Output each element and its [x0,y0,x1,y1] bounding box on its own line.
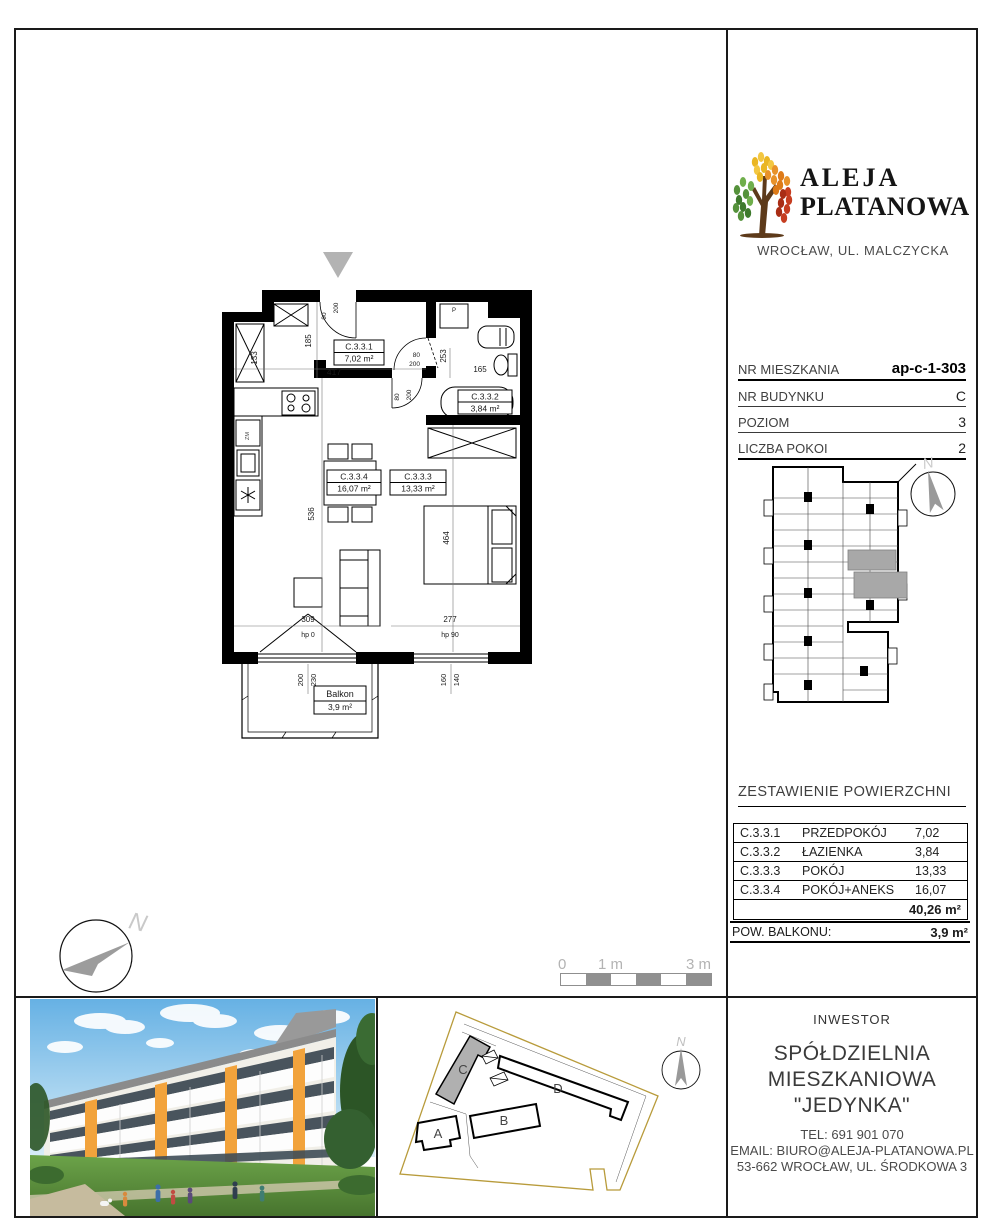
scale-label-1m: 1 m [598,956,623,973]
building-level-minimap: N [748,452,978,752]
room-name: POKÓJ [802,864,915,878]
living-code: C.3.3.4 [340,472,368,482]
door-bed-h: 200 [406,389,413,400]
area-row: C.3.3.3 POKÓJ 13,33 [734,862,967,881]
hall-code: C.3.3.1 [345,342,373,352]
win-left-a: 200 [296,674,305,687]
door-bath-h: 200 [409,361,420,368]
balcony-name: Balkon [326,689,354,699]
scale-bar [560,973,712,986]
door-entrance-h: 200 [333,302,340,313]
north-arrow-icon [62,942,130,976]
dishwasher-label: ZM [245,432,251,440]
brand-name-line1: ALEJA [800,163,900,192]
site-label-d: D [553,1081,562,1096]
win-left-b: 230 [309,674,318,687]
investor-name-line1: SPÓŁDZIELNIA [728,1041,976,1067]
dim-bath-depth: 253 [439,349,448,363]
minimap-north-arrow-icon [921,469,943,513]
washer-label: P [452,308,456,314]
door-bed-w: 80 [394,393,401,401]
highlighted-apartment-balcony [854,572,907,598]
info-label: NR MIESZKANIA [738,362,839,377]
room-code: C.3.3.2 [734,845,802,859]
area-summary-title: ZESTAWIENIE POWIERZCHNI [738,784,966,807]
brochure-page: C.3.3.1 7,02 m² C.3.3.2 3,84 m² C.3.3.4 … [0,0,992,1222]
dim-bath-width: 165 [473,365,487,374]
bath-code: C.3.3.2 [471,392,499,402]
room-name: POKÓJ+ANEKS [802,883,915,897]
investor-address: 53-662 WROCŁAW, UL. ŚRODKOWA 3 [728,1159,976,1175]
room-name: PRZEDPOKÓJ [802,826,915,840]
investor-phone: TEL: 691 901 070 [728,1127,976,1143]
side-table [294,578,322,607]
room-code: C.3.3.1 [734,826,802,840]
info-value: 3 [958,414,966,430]
room-area: 16,07 [915,883,967,897]
win-right-a: 160 [439,674,448,687]
kitchen-counter [234,388,318,516]
site-label-a: A [434,1126,443,1141]
balcony-label: POW. BALKONU: [732,925,831,939]
site-north-label: N [676,1034,686,1049]
room-area: 3,84 [915,845,967,859]
dim-bed-depth: 464 [442,531,451,545]
dim-hall-offset: 185 [304,334,313,348]
investor-block: INWESTOR SPÓŁDZIELNIA MIESZKANIOWA "JEDY… [728,1012,976,1175]
win-right-b: 140 [452,674,461,687]
info-row-building: NR BUDYNKU C [738,381,966,407]
sill-right: hp 90 [441,632,459,639]
investor-name-line2: MIESZKANIOWA "JEDYNKA" [728,1067,976,1119]
scale-label-0: 0 [558,956,566,973]
site-plan: C A B D N [378,998,724,1218]
area-summary-table: C.3.3.1 PRZEDPOKÓJ 7,02 C.3.3.2 ŁAZIENKA… [733,823,968,920]
north-compass-main: N [52,906,152,998]
bed [424,506,516,584]
scale-label-3m: 3 m [686,956,711,973]
hall-area: 7,02 m² [345,354,374,364]
bedroom-furniture [424,428,516,584]
minimap-north-label: N [921,454,935,473]
bed-area: 13,33 m² [401,484,435,494]
balcony-area: 3,9 m² [328,702,352,712]
area-row: C.3.3.4 POKÓJ+ANEKS 16,07 [734,881,967,900]
room-code: C.3.3.3 [734,864,802,878]
info-label: POZIOM [738,415,789,430]
info-value: ap-c-1-303 [892,360,966,377]
sill-left: hp 0 [301,632,315,639]
room-code: C.3.3.4 [734,883,802,897]
highlighted-apartment [848,550,896,570]
door-entrance-w: 90 [321,312,328,320]
brand-location: WROCŁAW, UL. MALCZYCKA [728,243,978,258]
site-label-c: C [458,1062,467,1077]
bed-code: C.3.3.3 [404,472,432,482]
room-area: 13,33 [915,864,967,878]
balcony-area-row: POW. BALKONU: 3,9 m² [730,921,970,943]
dim-bed-width: 277 [443,615,457,624]
info-row-apartment-number: NR MIESZKANIA ap-c-1-303 [738,354,966,381]
site-north-arrow-icon [675,1048,687,1086]
dim-hall-width: 417 [327,367,341,377]
site-label-b: B [500,1113,509,1128]
dim-shaft: 133 [250,351,259,365]
apartment-floor-plan: C.3.3.1 7,02 m² C.3.3.2 3,84 m² C.3.3.4 … [222,248,542,748]
washbasin [478,326,514,348]
total-area: 40,26 m² [734,900,967,919]
apartment-info-table: NR MIESZKANIA ap-c-1-303 NR BUDYNKU C PO… [738,354,966,460]
stove [282,391,315,415]
building-photo [30,999,375,1216]
area-row: C.3.3.1 PRZEDPOKÓJ 7,02 [734,824,967,843]
door-bath-w: 80 [413,352,421,359]
dim-living-depth: 536 [307,507,316,521]
info-label: NR BUDYNKU [738,389,824,404]
toilet [508,354,517,376]
info-value: C [956,388,966,404]
brand-tree-icon [730,150,794,238]
north-label: N [126,908,150,939]
living-area: 16,07 m² [337,484,371,494]
balcony-value: 3,9 m² [930,925,968,940]
investor-heading: INWESTOR [728,1012,976,1027]
room-area: 7,02 [915,826,967,840]
bath-area: 3,84 m² [471,404,500,414]
dim-living-width: 309 [301,615,315,624]
investor-email: EMAIL: BIURO@ALEJA-PLATANOWA.PL [728,1143,976,1159]
info-row-level: POZIOM 3 [738,407,966,433]
room-name: ŁAZIENKA [802,845,915,859]
entrance-marker-icon [323,252,353,278]
brand-name-line2: PLATANOWA [800,192,970,221]
area-row: C.3.3.2 ŁAZIENKA 3,84 [734,843,967,862]
